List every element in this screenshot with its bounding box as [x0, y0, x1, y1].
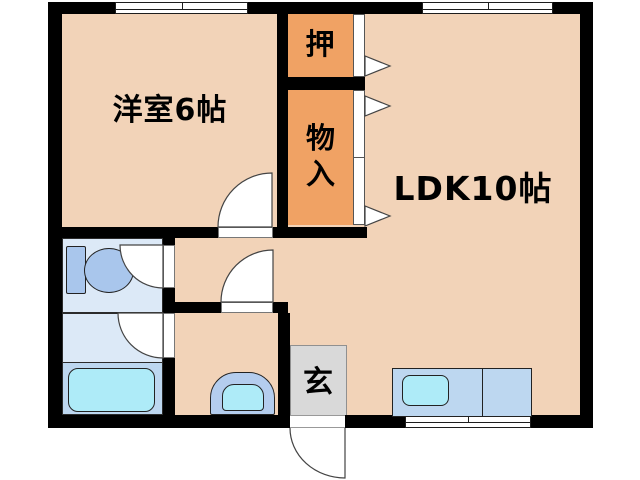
westernroom-door-swing: [218, 173, 274, 229]
western-room-label: 洋室6帖: [60, 94, 280, 129]
toilet-door-swing: [120, 245, 165, 290]
wall-toilet-right-upper: [163, 238, 175, 245]
door-direction-marker-icon: [364, 205, 392, 227]
entrance-door-swing: [290, 428, 347, 480]
track-tick: [353, 157, 365, 158]
kitchen-counter: [392, 368, 532, 417]
wall-left: [48, 2, 62, 428]
door-direction-marker-icon: [364, 95, 392, 117]
washbasin-bowl: [222, 384, 264, 411]
wall-westernroom-bottom: [62, 227, 218, 238]
window-line: [423, 9, 552, 10]
storage-label: 物入: [302, 120, 340, 193]
toilet-tank: [66, 246, 86, 294]
window-line: [116, 9, 247, 10]
ldk-window-icon: [422, 2, 553, 14]
wall-right: [580, 2, 593, 428]
ldk-label: LDK10帖: [362, 170, 584, 208]
window-line: [406, 422, 530, 423]
kitchen-sink: [402, 375, 449, 406]
wall-hall-left: [163, 302, 221, 313]
entrance-label: 玄: [290, 366, 347, 401]
floorplan: 洋室6帖 LDK10帖 押 物入 玄: [0, 0, 640, 480]
wall-entrance-left: [278, 313, 290, 428]
wall-bath-right: [163, 358, 175, 415]
bathtub: [68, 368, 155, 412]
hall-door-swing: [221, 250, 275, 304]
oshiire-label: 押: [288, 28, 353, 61]
counter-divider: [482, 369, 483, 416]
wall-closet-divider: [288, 77, 365, 90]
door-direction-marker-icon: [364, 55, 392, 77]
entrance-opening: [290, 415, 345, 428]
wall-stub: [273, 227, 288, 238]
wall-hall-right: [273, 302, 288, 313]
westernroom-window-icon: [115, 2, 248, 14]
bath-door-swing: [118, 313, 165, 360]
window-tick: [488, 3, 489, 9]
wall-closet-bottom: [288, 227, 367, 238]
window-tick: [182, 3, 183, 9]
